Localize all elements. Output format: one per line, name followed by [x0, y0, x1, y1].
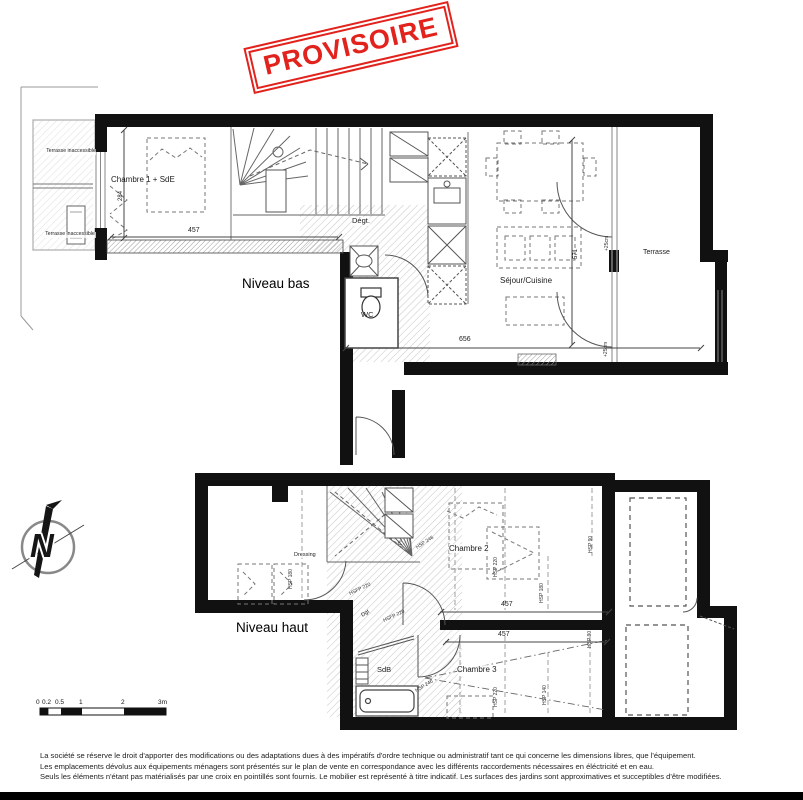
dim-hsp180-c2: HSP 180: [540, 583, 546, 603]
room-label-chambre3: Chambre 3: [457, 665, 497, 674]
plan-haut-geometry: [195, 473, 737, 730]
dining-table-outline: [486, 131, 596, 213]
scale-tick-1: 1: [79, 699, 83, 706]
scale-bar: [40, 708, 166, 715]
compass-north-letter: N: [30, 527, 54, 565]
ac-unit-icon: [67, 206, 85, 244]
roof-outlines: [626, 498, 688, 715]
sofa-outline: [497, 227, 581, 268]
disclaimer-line-3: Seuls les éléments n'étant pas matériali…: [40, 772, 800, 781]
dim-571: 571: [573, 249, 580, 259]
scale-tick-2: 2: [121, 699, 125, 706]
plan-bas-geometry: [21, 87, 728, 465]
legal-disclaimer: La société se réserve le droit d'apporte…: [40, 751, 800, 783]
dim-plus25cm-1: +25cm: [605, 236, 611, 251]
radiator-icon: [356, 658, 368, 684]
scale-tick-05: 0.5: [55, 699, 64, 706]
partition-chambre1: [107, 240, 343, 253]
dim-plus25cm-2: +25cm: [604, 342, 610, 357]
stairs-bas-icon: [233, 128, 385, 215]
scale-tick-0: 0: [36, 699, 40, 706]
room-label-terrasse-inaccessible-1: Terrasse inaccessible: [46, 149, 96, 155]
coffee-table-outline: [506, 297, 564, 325]
floor-plan-page: Terrasse inaccessible Terrasse inaccessi…: [0, 0, 803, 800]
room-label-sejour-cuisine: Séjour/Cuisine: [500, 276, 552, 285]
room-label-chambre2: Chambre 2: [449, 544, 489, 553]
disclaimer-line-1: La société se réserve le droit d'apporte…: [40, 751, 800, 760]
room-label-degt: Dégt.: [352, 217, 370, 226]
room-label-dressing: Dressing: [294, 552, 316, 558]
room-label-chambre1: Chambre 1 + SdE: [111, 175, 175, 184]
dim-hsp90-c2: HSP 90: [589, 536, 595, 553]
dim-457-c2: 457: [501, 601, 513, 609]
dim-457-chambre1: 457: [188, 227, 200, 235]
dim-hsp220-c2: HSP 220: [494, 557, 500, 577]
level-title-haut: Niveau haut: [236, 620, 308, 636]
dim-457-c3: 457: [498, 631, 510, 639]
scale-tick-02: 0.2: [42, 699, 51, 706]
basin-icon: [350, 246, 378, 276]
dim-hsp140-c3: HSP 140: [543, 685, 549, 705]
room-label-sdb: SdB: [377, 666, 391, 675]
window-chambre1: [93, 152, 109, 228]
dim-hsp90-c3: HSP 90: [588, 631, 594, 648]
room-label-terrasse-inaccessible-2: Terrasse inaccessible: [44, 232, 96, 238]
dim-284: 284: [118, 191, 125, 201]
page-bottom-border: [0, 792, 803, 800]
room-label-placard: Pl.: [399, 539, 405, 545]
dressing-units: [238, 564, 308, 604]
terrace-glazing: [612, 127, 617, 362]
doormat: [518, 354, 556, 365]
hsp-boundary-lines: [455, 488, 592, 716]
dim-hsp220-c3: HSP 220: [494, 687, 500, 707]
bathtub-icon: [356, 686, 418, 716]
room-label-wc: WC: [361, 311, 374, 320]
disclaimer-line-2: Les emplacements dévolus aux équipements…: [40, 762, 800, 771]
level-title-bas: Niveau bas: [242, 276, 310, 292]
dim-656: 656: [459, 336, 471, 344]
room-label-terrasse: Terrasse: [643, 249, 670, 257]
plan-drawing: [0, 0, 803, 800]
dim-hsp-dressing: HSP 180: [289, 569, 295, 589]
walls-haut: [195, 473, 737, 730]
scale-tick-3m: 3m: [158, 699, 167, 706]
